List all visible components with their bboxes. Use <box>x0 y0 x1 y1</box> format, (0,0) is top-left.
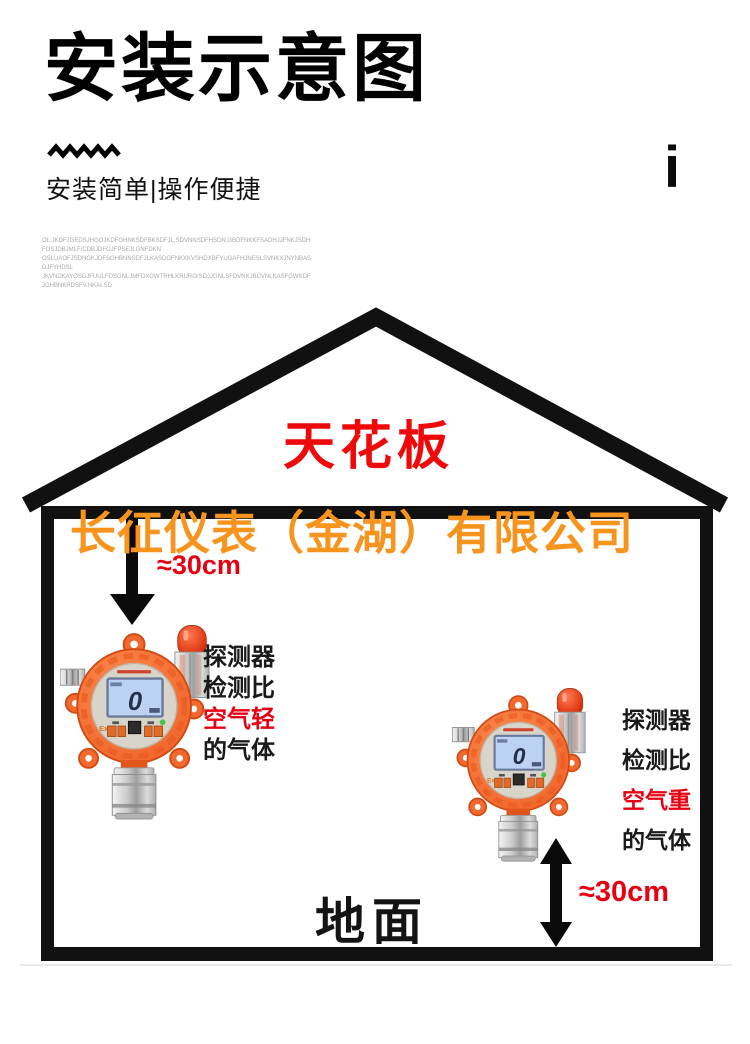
installation-diagram-page: 安装示意图 安装简单|操作便捷 i OL.JKDFJGEDSJHGOJKDFGH… <box>0 0 750 1044</box>
distance-label-left: ≈30cm <box>157 550 241 581</box>
caption-line: 的气体 <box>203 735 275 766</box>
right-wall <box>700 506 713 961</box>
floor-shadow-line <box>20 964 732 966</box>
caption-line: 检测比 <box>622 740 691 780</box>
caption-line: 探测器 <box>622 700 691 740</box>
distance-label-right: ≈30cm <box>579 876 669 909</box>
gas-detector-left: 0 Ex <box>60 616 212 820</box>
caption-line-highlight: 空气重 <box>622 780 691 820</box>
brand-watermark: 长征仪表（金湖）有限公司 <box>70 497 634 563</box>
caption-line-highlight: 空气轻 <box>203 704 275 735</box>
caption-line: 检测比 <box>203 673 275 704</box>
caption-right: 探测器 检测比 空气重 的气体 <box>622 700 691 860</box>
caption-left: 探测器 检测比 空气轻 的气体 <box>203 642 275 766</box>
gas-detector-right <box>452 680 588 862</box>
floor-label: 地面 <box>315 882 429 954</box>
left-wall <box>41 506 54 961</box>
caption-line: 的气体 <box>622 820 691 860</box>
ceiling-label: 天花板 <box>283 404 454 479</box>
caption-line: 探测器 <box>203 642 275 673</box>
